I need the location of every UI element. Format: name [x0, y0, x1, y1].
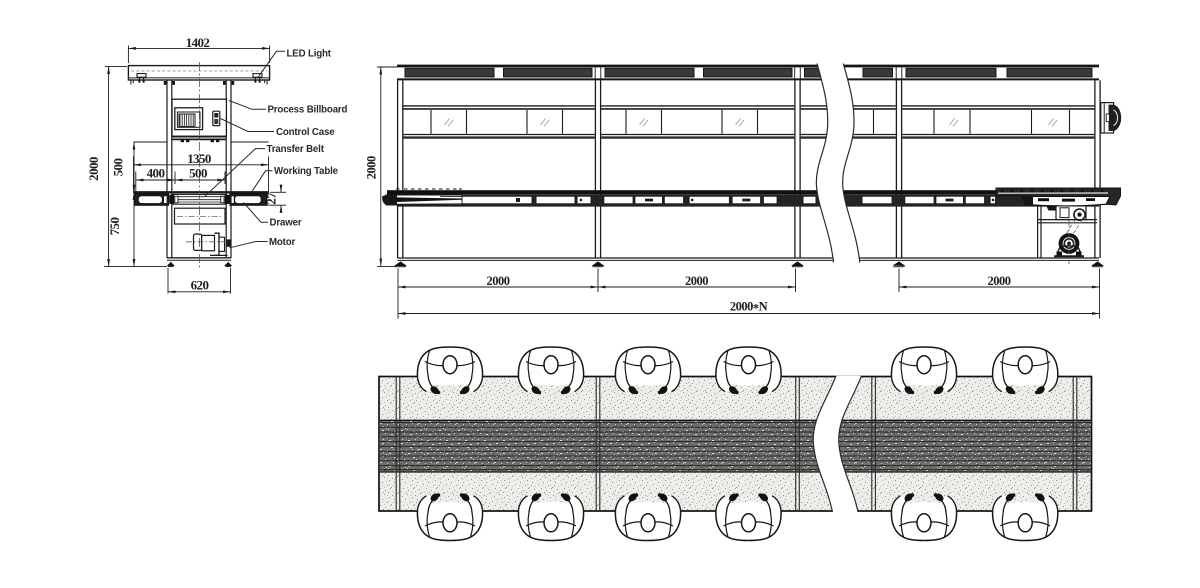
svg-text:750: 750	[107, 218, 122, 236]
svg-text:2000: 2000	[364, 156, 378, 179]
svg-text:500: 500	[111, 159, 126, 177]
svg-text:Process Billboard: Process Billboard	[268, 105, 348, 116]
svg-text:400: 400	[147, 165, 165, 180]
svg-text:620: 620	[191, 277, 209, 292]
svg-text:2000*N: 2000*N	[730, 300, 768, 316]
svg-text:27: 27	[264, 192, 279, 205]
svg-text:2000: 2000	[86, 157, 101, 181]
svg-text:2000: 2000	[685, 274, 708, 288]
svg-text:500: 500	[189, 165, 207, 180]
svg-text:Motor: Motor	[269, 237, 296, 248]
svg-text:LED Light: LED Light	[287, 48, 332, 59]
svg-text:1350: 1350	[187, 151, 211, 166]
svg-text:2000: 2000	[487, 274, 510, 288]
svg-text:Drawer: Drawer	[270, 218, 302, 229]
svg-text:Transfer Belt: Transfer Belt	[267, 144, 325, 155]
svg-text:Control Case: Control Case	[276, 127, 335, 138]
svg-text:1402: 1402	[186, 35, 210, 50]
svg-text:2000: 2000	[988, 274, 1011, 288]
svg-text:Working Table: Working Table	[274, 166, 339, 177]
